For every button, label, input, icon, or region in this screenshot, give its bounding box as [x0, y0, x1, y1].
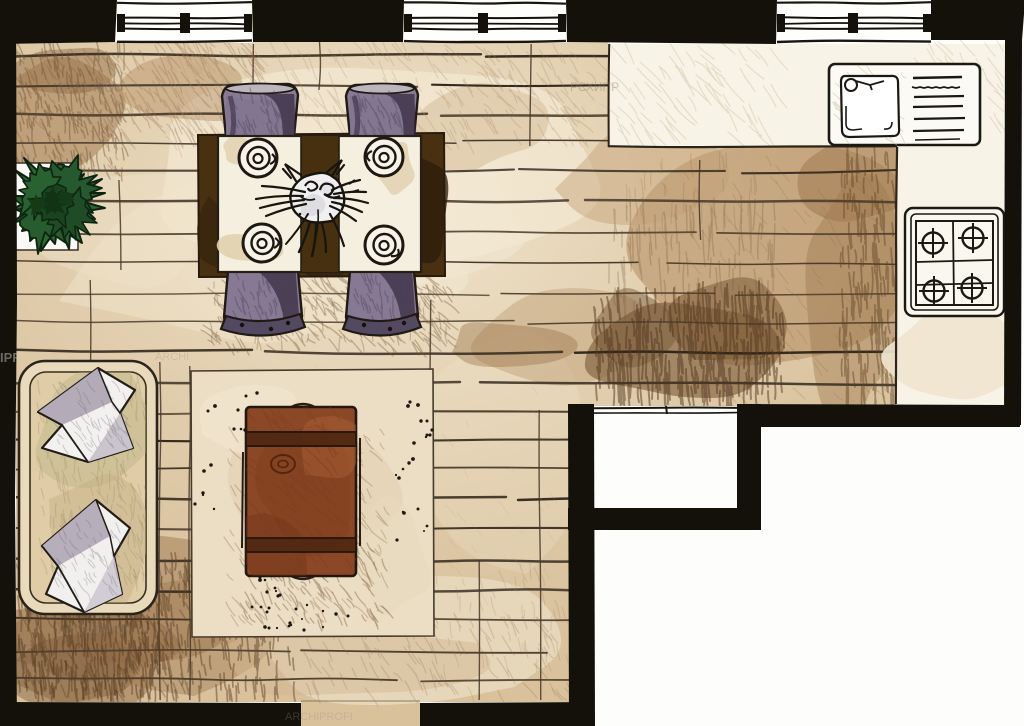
svg-text:РСХИПР: РСХИПР: [570, 80, 619, 94]
svg-text:АРХИПРОФ: АРХИПРОФ: [56, 81, 123, 95]
svg-text:ARCHIPROFI: ARCHIPROFI: [58, 623, 132, 637]
svg-text:ARCHI: ARCHI: [155, 351, 189, 363]
svg-text:ARCHIPROFI: ARCHIPROFI: [285, 711, 353, 723]
svg-text:IPR: IPR: [0, 350, 22, 365]
